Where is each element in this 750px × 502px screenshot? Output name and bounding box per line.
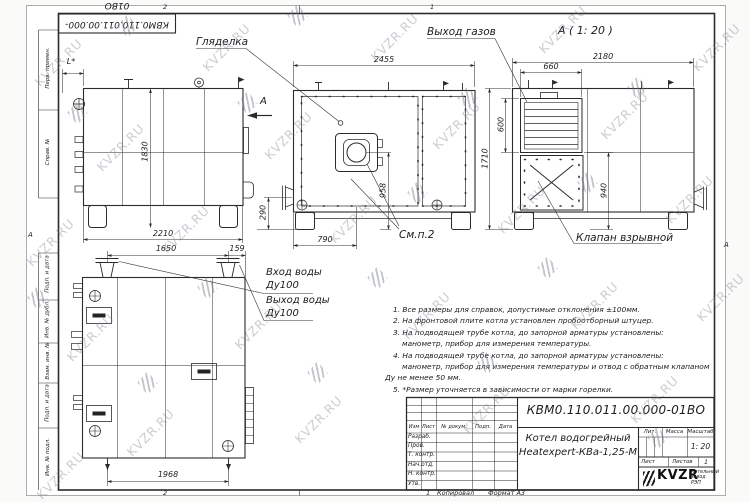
frame-lines [27,6,726,496]
drawing-linework [0,0,750,500]
